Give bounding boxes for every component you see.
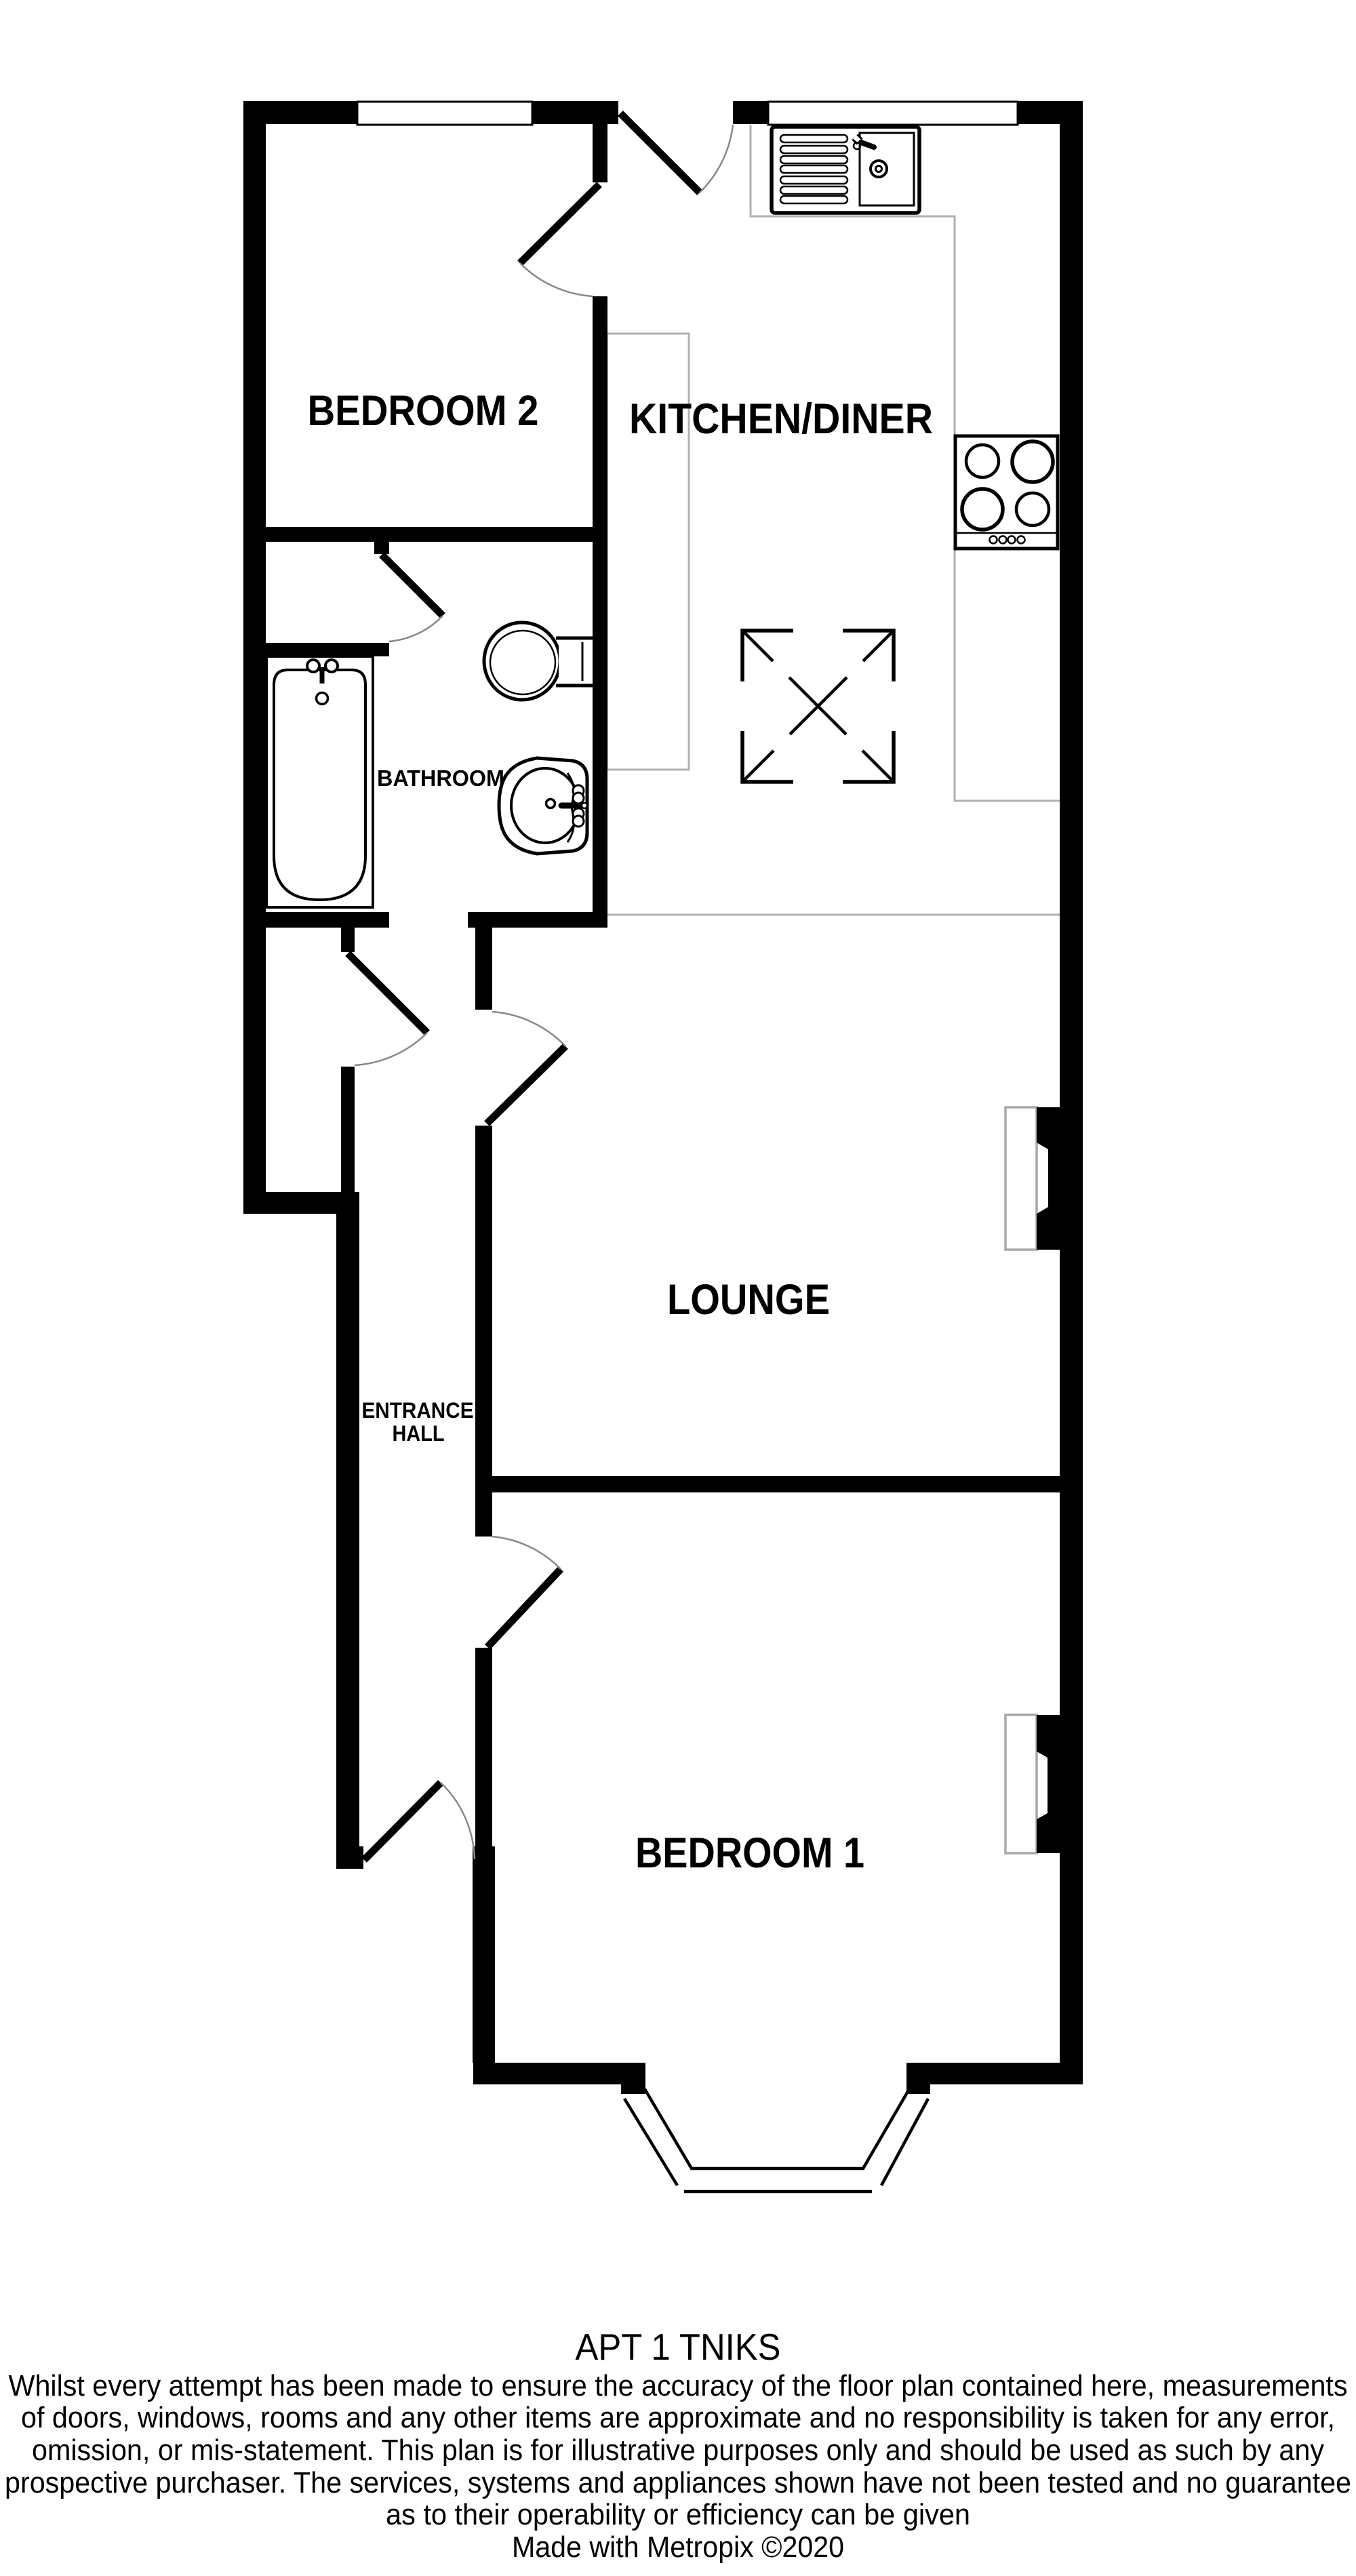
svg-text:LOUNGE: LOUNGE — [667, 1276, 830, 1324]
svg-text:as to their operability or eff: as to their operability or efficiency ca… — [386, 2498, 970, 2531]
svg-text:BATHROOM: BATHROOM — [377, 766, 504, 791]
svg-text:ENTRANCE: ENTRANCE — [362, 1398, 474, 1423]
svg-text:Whilst every attempt has been: Whilst every attempt has been made to en… — [9, 2369, 1348, 2402]
svg-text:Made with Metropix ©2020: Made with Metropix ©2020 — [512, 2531, 844, 2564]
svg-text:KITCHEN/DINER: KITCHEN/DINER — [629, 395, 933, 443]
svg-text:of doors, windows, rooms and a: of doors, windows, rooms and any other i… — [21, 2401, 1335, 2434]
svg-text:APT 1 TNIKS: APT 1 TNIKS — [576, 2326, 781, 2368]
svg-text:omission, or mis-statement. Th: omission, or mis-statement. This plan is… — [32, 2434, 1324, 2467]
svg-text:prospective purchaser. The ser: prospective purchaser. The services, sys… — [5, 2466, 1351, 2499]
svg-text:BEDROOM 2: BEDROOM 2 — [308, 387, 539, 435]
svg-text:BEDROOM 1: BEDROOM 1 — [635, 1829, 864, 1877]
svg-text:HALL: HALL — [393, 1421, 445, 1446]
